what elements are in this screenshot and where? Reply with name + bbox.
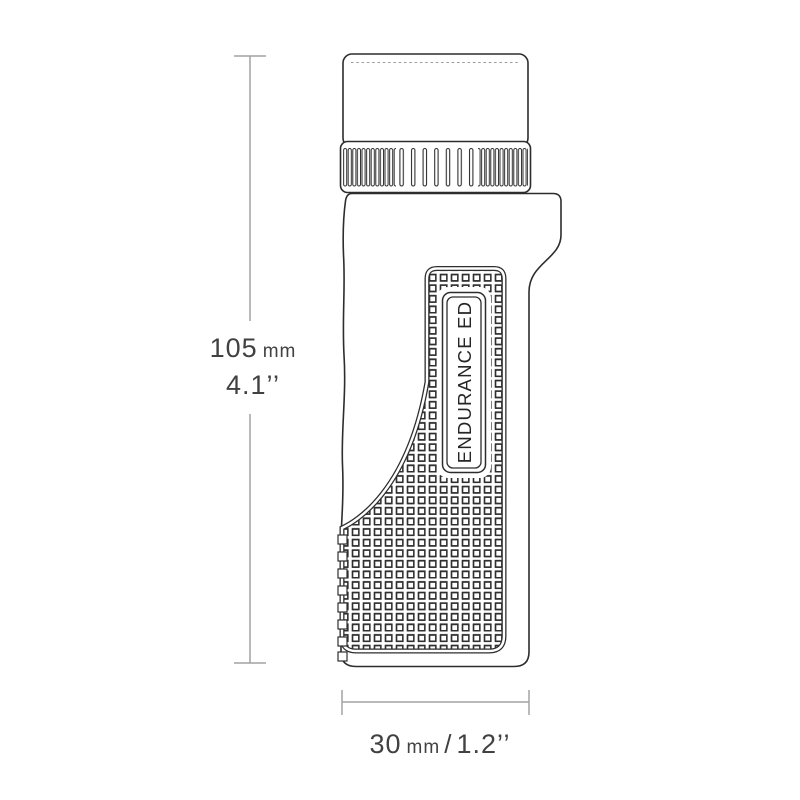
badge-text: ENDURANCE ED <box>454 301 475 463</box>
width-value: 30 <box>370 729 402 759</box>
diagram-canvas: ENDURANCE ED <box>0 0 800 800</box>
focus-ring <box>341 142 531 193</box>
height-unit: mm <box>263 341 297 362</box>
brand-badge: ENDURANCE ED <box>437 287 491 478</box>
width-separator: / <box>444 729 452 759</box>
focus-ring-ribs-right <box>478 147 528 188</box>
width-dimension-line <box>342 690 529 715</box>
eyecup <box>343 54 528 147</box>
height-dimension-label: 105mm 4.1’’ <box>153 332 353 406</box>
height-imperial-value: 4.1’’ <box>226 370 280 400</box>
focus-ring-ribs-middle <box>396 147 478 188</box>
height-metric-label: 105mm <box>153 332 353 369</box>
height-imperial-label: 4.1’’ <box>153 369 353 406</box>
width-imperial-value: 1.2’’ <box>456 729 510 759</box>
monocular-dimension-diagram: ENDURANCE ED 105mm 4.1’’ 30mm/1.2’’ <box>0 0 800 800</box>
height-value: 105 <box>210 333 258 363</box>
focus-ring-ribs-left <box>343 147 396 188</box>
width-dimension-label: 30mm/1.2’’ <box>335 728 545 765</box>
width-unit: mm <box>407 737 441 758</box>
